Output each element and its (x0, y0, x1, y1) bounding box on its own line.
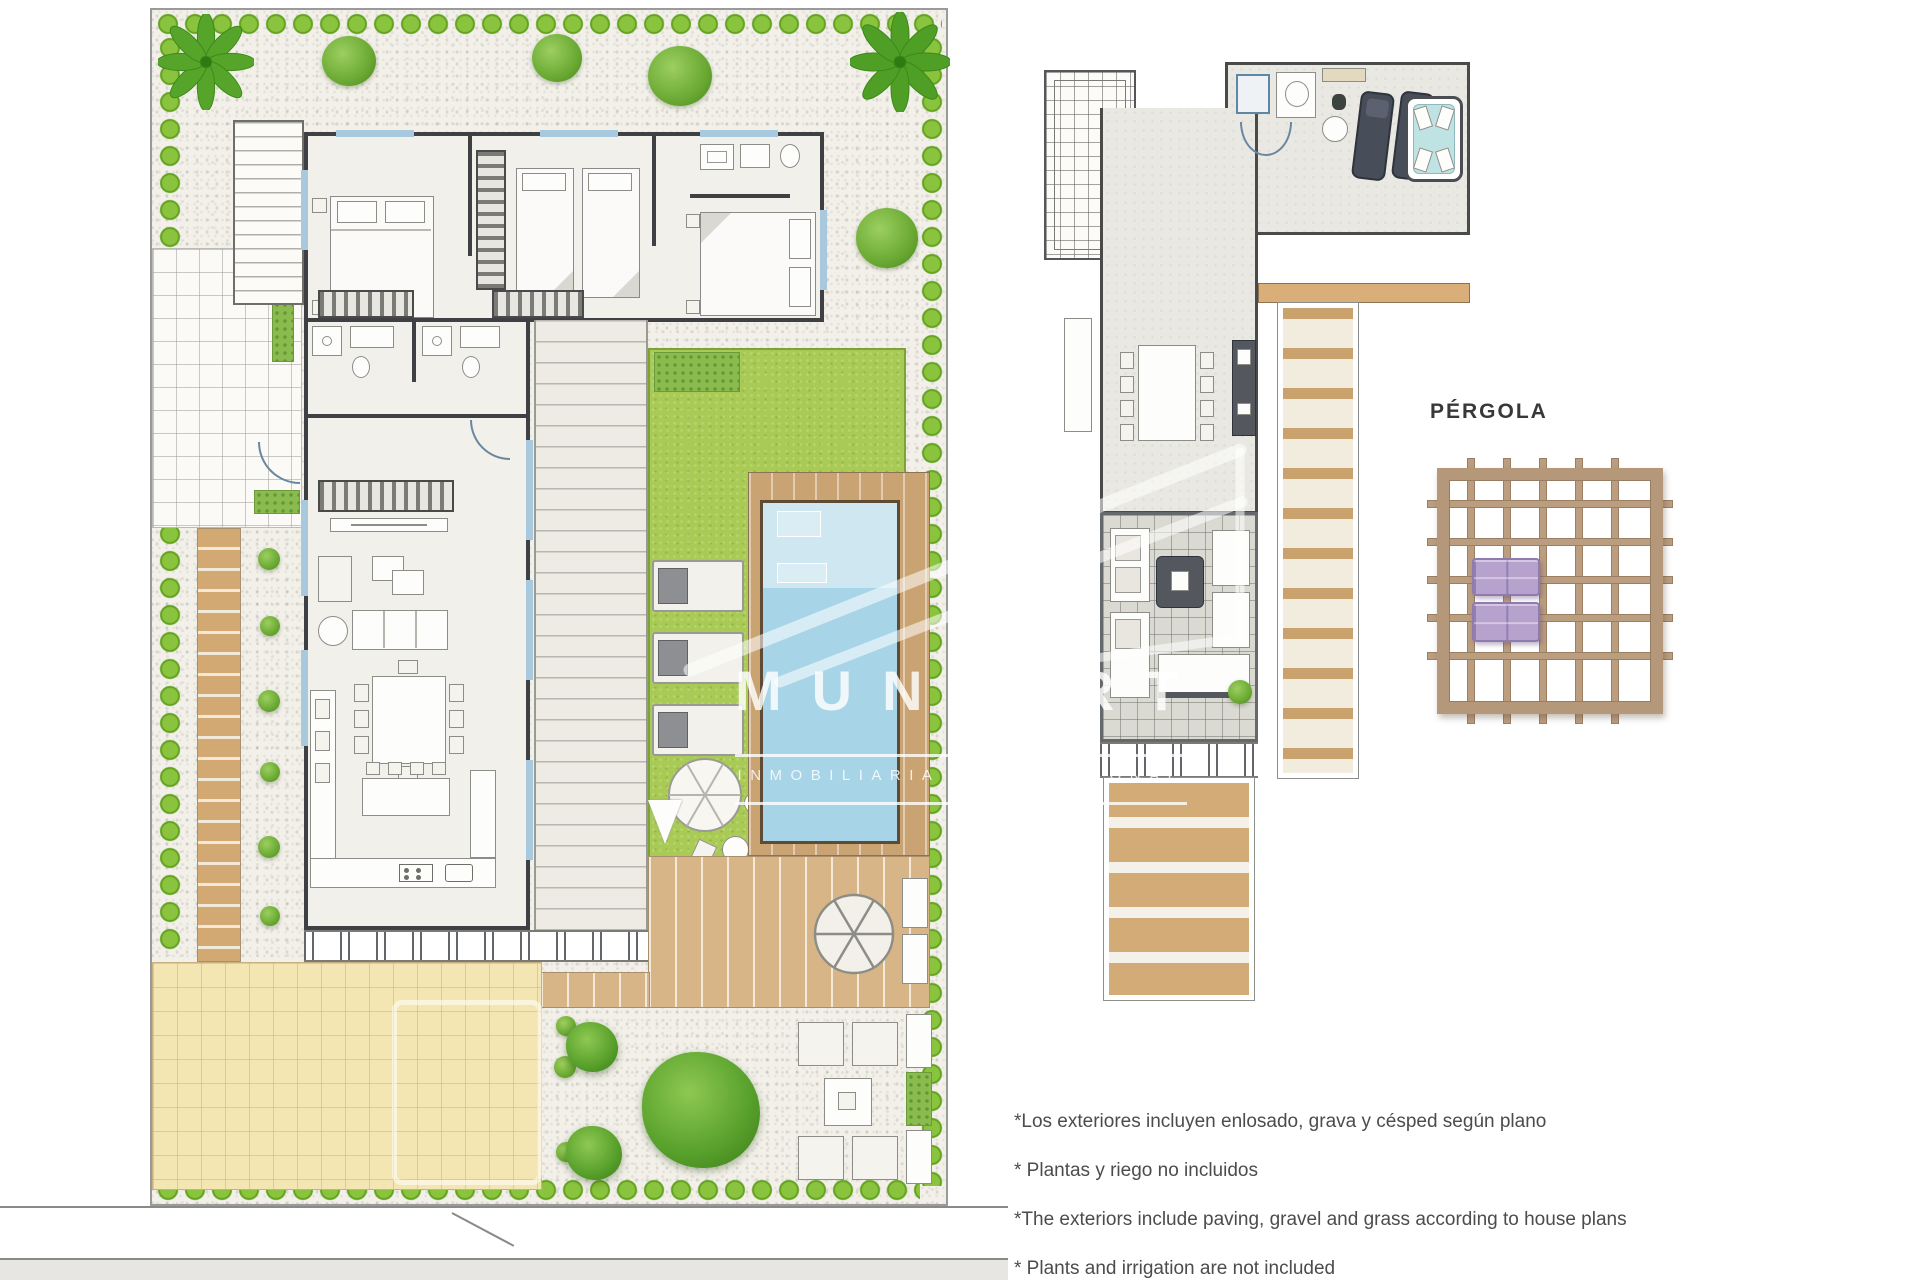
parking-ghost (392, 1000, 542, 1185)
deck-planter (902, 934, 928, 984)
window (820, 210, 827, 290)
jacuzzi-icon (1405, 96, 1463, 182)
chair-icon (449, 710, 464, 728)
chair-icon (354, 736, 369, 754)
shelf-icon (1322, 68, 1366, 82)
purple-lounger-icon (1472, 602, 1540, 642)
kitchen-counter (310, 858, 496, 888)
pool-steps (777, 563, 827, 583)
single-bed-icon (516, 168, 574, 298)
hedge-top (156, 12, 942, 36)
nightstand-icon (686, 214, 700, 228)
chair-icon (1200, 376, 1214, 393)
gate-tick (452, 1212, 515, 1247)
chair-icon (449, 736, 464, 754)
disclaimer-notes: *Los exteriores incluyen enlosado, grava… (1014, 1104, 1774, 1280)
bathroom-sink-icon (700, 144, 734, 170)
wardrobe-icon (318, 290, 414, 318)
palm-tree-icon (158, 14, 254, 110)
toilet-icon (462, 356, 480, 378)
chair-icon (1200, 400, 1214, 417)
road-strip (0, 1258, 1008, 1280)
shrub-icon (260, 616, 280, 636)
double-bed-icon (700, 212, 816, 316)
note-line: *Los exteriores incluyen enlosado, grava… (1014, 1104, 1774, 1140)
garden-chair-icon (852, 1136, 898, 1180)
slatted-pergola-roof (1278, 303, 1358, 778)
roof-wood-deck (1104, 778, 1254, 1000)
pool-steps (777, 511, 821, 537)
outdoor-sofa-icon (1110, 528, 1150, 602)
planter-bed (272, 300, 294, 362)
chair-icon (1200, 352, 1214, 369)
sink-icon (445, 864, 473, 882)
washbasin-icon (350, 326, 394, 348)
shrub-icon (258, 836, 280, 858)
wardrobe-icon (476, 150, 506, 290)
purple-lounger-icon (1472, 558, 1540, 596)
boundary-planter (906, 1130, 932, 1184)
stool-icon (388, 762, 402, 775)
swimming-pool (760, 500, 900, 844)
sun-lounger-icon (652, 632, 744, 684)
kitchen-counter (470, 770, 496, 858)
covered-terrace (534, 320, 648, 930)
palm-tree-icon (850, 12, 950, 112)
munport-logo-letter-icon (1002, 669, 1044, 717)
hob-icon (399, 864, 433, 882)
leafy-shrub-icon (566, 1126, 622, 1180)
nightstand-icon (312, 198, 327, 213)
sofa-icon (352, 610, 448, 650)
outdoor-chaise-icon (1110, 612, 1150, 698)
fire-table-icon (1156, 556, 1204, 608)
chair-icon (1120, 352, 1134, 369)
shrub-icon (258, 690, 280, 712)
shrub-icon (260, 762, 280, 782)
boundary-planter (906, 1072, 932, 1126)
garden-chair-icon (852, 1022, 898, 1066)
kitchen-counter (310, 690, 336, 862)
chair-icon (354, 710, 369, 728)
nightstand-icon (686, 300, 700, 314)
note-line: * Plants and irrigation are not included (1014, 1251, 1774, 1280)
garden-table-icon (824, 1078, 872, 1126)
garden-chair-icon (798, 1136, 844, 1180)
wardrobe-icon (492, 290, 584, 318)
outdoor-sink-icon (1236, 74, 1270, 114)
lounge-chair-icon (1212, 592, 1250, 648)
plant-pot-icon (1332, 94, 1346, 110)
bedroom-divider-wall (468, 136, 472, 256)
coffee-table-icon (392, 570, 424, 595)
kitchen-island-icon (362, 778, 450, 816)
bathroom-sink-icon (740, 144, 770, 168)
chair-icon (1120, 400, 1134, 417)
chair-icon (1120, 376, 1134, 393)
outdoor-kitchen-unit (1232, 340, 1256, 436)
shrub-icon (532, 34, 582, 82)
pergola-label: PÉRGOLA (1430, 400, 1548, 424)
deck-planter (902, 878, 928, 928)
armchair-icon (318, 556, 352, 602)
glass-door (526, 440, 533, 540)
floor-plan-sheet: PÉRGOLA MUNP RT (0, 0, 1920, 1280)
side-table-icon (318, 616, 348, 646)
chair-icon (354, 684, 369, 702)
window (301, 170, 308, 250)
washbasin-icon (460, 326, 500, 348)
window (336, 130, 414, 137)
note-line: * Plantas y riego no incluidos (1014, 1153, 1774, 1189)
solarium-terrace (1100, 108, 1258, 514)
stool-icon (410, 762, 424, 775)
single-bed-icon (582, 168, 640, 298)
chair-icon (398, 660, 418, 674)
round-table-icon (1322, 116, 1348, 142)
leafy-shrub-icon (566, 1022, 618, 1072)
glass-door (526, 580, 533, 680)
shrub-icon (258, 548, 280, 570)
pergola-beam-ends (1100, 742, 1258, 778)
console-table-icon (330, 518, 448, 532)
pergola-detail (1437, 468, 1663, 714)
roof-planter (1064, 318, 1092, 432)
potted-plant-icon (1228, 680, 1252, 704)
sun-lounger-icon (652, 560, 744, 612)
shrub-icon (648, 46, 712, 106)
tv-sideboard-icon (318, 480, 454, 512)
chair-icon (449, 684, 464, 702)
bedroom-divider-wall (652, 136, 656, 246)
bathroom-divider (412, 322, 416, 382)
roof-dining-table-icon (1138, 345, 1196, 441)
shrub-icon (260, 906, 280, 926)
bathroom-wall (690, 194, 790, 198)
dining-table-icon (372, 676, 446, 764)
stool-icon (366, 762, 380, 775)
flower-bed (654, 352, 740, 392)
folded-parasol-icon (648, 800, 682, 844)
toilet-icon (352, 356, 370, 378)
note-line: *The exteriors include paving, gravel an… (1014, 1202, 1774, 1238)
planter-bed (254, 490, 300, 514)
stool-icon (432, 762, 446, 775)
wood-ledge (1258, 283, 1470, 303)
glass-door (526, 760, 533, 860)
shrub-icon (856, 208, 918, 268)
washbasin-icon (1276, 72, 1316, 118)
exterior-staircase (233, 120, 304, 305)
deck-table-icon (812, 892, 896, 976)
chair-icon (1200, 424, 1214, 441)
shrub-icon (322, 36, 376, 86)
garden-chair-icon (798, 1022, 844, 1066)
shower-icon (422, 326, 452, 356)
wood-deck (540, 972, 650, 1008)
sun-lounger-icon (652, 704, 744, 756)
shower-icon (312, 326, 342, 356)
boundary-planter (906, 1014, 932, 1068)
chair-icon (1120, 424, 1134, 441)
sidewalk-line (0, 1206, 1008, 1208)
window (301, 650, 308, 746)
window (301, 500, 308, 596)
lounge-chair-icon (1212, 530, 1250, 586)
wood-step-path (197, 528, 241, 962)
porch-columns (304, 930, 648, 962)
toilet-icon (780, 144, 800, 168)
window (540, 130, 618, 137)
window (700, 130, 778, 137)
